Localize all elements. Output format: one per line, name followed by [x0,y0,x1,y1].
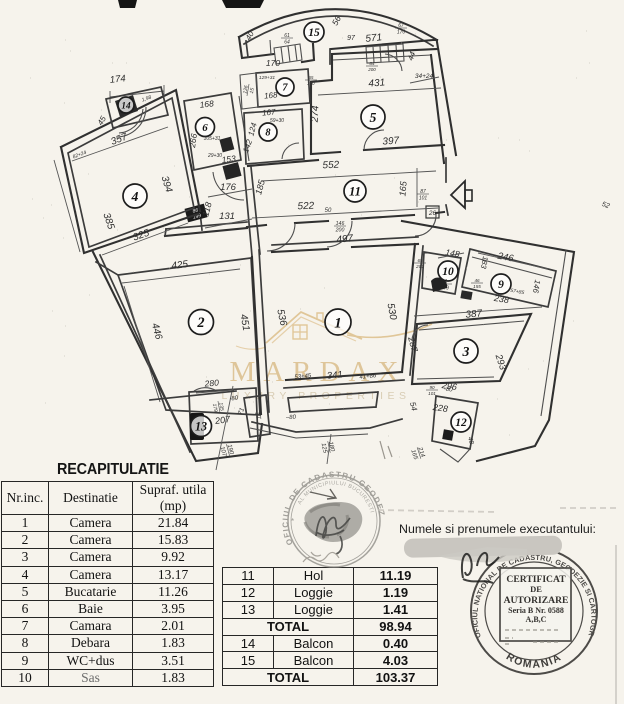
svg-text:3: 3 [462,344,470,359]
svg-text:174: 174 [109,73,126,86]
svg-text:4: 4 [131,189,139,204]
svg-text:451: 451 [238,313,252,331]
svg-text:571: 571 [365,32,383,45]
svg-text:40: 40 [244,29,256,42]
svg-text:431: 431 [368,77,385,89]
svg-text:238: 238 [492,293,510,306]
svg-text:176: 176 [220,182,237,193]
svg-text:536: 536 [274,308,288,327]
svg-text:8: 8 [265,128,271,139]
svg-text:6: 6 [202,122,208,134]
svg-text:17: 17 [253,411,262,420]
svg-text:446: 446 [149,322,164,341]
svg-text:118: 118 [200,201,213,217]
svg-text:146: 146 [531,279,542,294]
svg-text:148: 148 [445,247,461,259]
svg-text:11: 11 [349,185,361,199]
svg-text:46: 46 [474,278,480,283]
svg-text:200: 200 [367,67,376,72]
svg-text:131: 131 [219,211,235,222]
svg-text:12: 12 [455,417,467,429]
svg-text:10: 10 [442,266,454,278]
svg-text:168: 168 [264,90,279,100]
svg-text:530: 530 [385,302,399,321]
svg-text:54: 54 [408,401,419,412]
svg-text:357: 357 [109,131,129,147]
svg-text:207: 207 [213,414,231,426]
svg-text:64: 64 [284,40,290,46]
svg-text:9: 9 [498,279,504,291]
svg-text:522: 522 [297,201,315,213]
svg-text:97: 97 [347,35,356,42]
svg-text:165: 165 [409,449,418,461]
svg-text:52: 52 [601,201,611,210]
svg-text:2: 2 [196,315,204,331]
svg-text:57+85: 57+85 [510,288,525,296]
svg-text:179: 179 [211,403,218,412]
svg-text:44: 44 [406,50,418,62]
svg-text:425: 425 [171,259,189,272]
svg-text:5: 5 [370,110,377,125]
svg-text:125: 125 [320,443,328,455]
svg-text:153: 153 [221,153,237,165]
svg-text:497: 497 [336,233,354,246]
svg-text:15: 15 [249,87,256,94]
svg-text:385: 385 [100,212,116,232]
svg-text:124: 124 [247,121,259,137]
svg-text:65: 65 [417,258,423,263]
svg-text:59+30: 59+30 [270,118,284,124]
svg-text:101: 101 [428,391,436,396]
svg-text:29+30: 29+30 [207,153,222,159]
svg-text:14: 14 [121,100,131,110]
svg-text:48: 48 [466,436,475,445]
svg-text:50: 50 [325,208,332,214]
svg-text:170: 170 [266,58,280,68]
svg-text:394: 394 [159,175,175,195]
svg-text:1: 1 [334,315,341,331]
svg-text:101: 101 [419,196,428,202]
svg-text:~80: ~80 [286,415,297,422]
svg-text:201: 201 [415,264,424,269]
svg-text:142: 142 [241,138,254,154]
svg-text:397: 397 [382,135,400,147]
svg-text:168: 168 [199,98,215,110]
svg-text:7: 7 [282,83,288,94]
svg-text:82+24: 82+24 [72,150,87,161]
svg-text:165: 165 [397,180,408,197]
svg-text:155: 155 [473,284,481,289]
svg-text:90: 90 [429,385,435,390]
svg-text:13: 13 [195,419,207,433]
svg-text:200: 200 [335,228,345,234]
svg-text:129+31: 129+31 [259,75,275,81]
svg-text:105+31: 105+31 [204,136,221,142]
svg-text:552: 552 [322,160,340,172]
svg-text:274: 274 [310,105,322,124]
svg-text:341: 341 [326,369,343,381]
svg-text:287: 287 [406,335,420,354]
svg-text:183: 183 [479,255,490,270]
svg-text:-80: -80 [443,386,453,393]
svg-text:84: 84 [369,61,375,66]
svg-text:15: 15 [308,27,320,39]
svg-text:170: 170 [397,30,406,36]
svg-text:167: 167 [262,107,277,117]
svg-text:266: 266 [187,133,199,150]
